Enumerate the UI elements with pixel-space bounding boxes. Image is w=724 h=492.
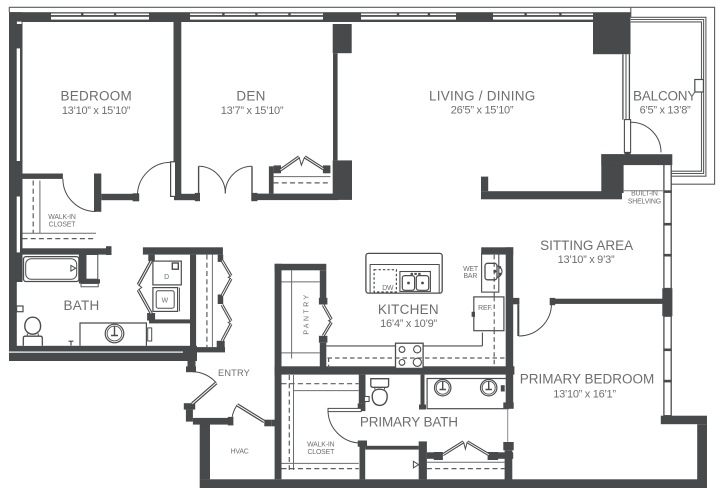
svg-text:DEN: DEN — [236, 88, 265, 103]
svg-text:HVAC: HVAC — [231, 448, 249, 455]
svg-text:W: W — [162, 298, 169, 305]
svg-text:PANTRY: PANTRY — [303, 292, 310, 334]
svg-text:BATH: BATH — [63, 298, 99, 313]
svg-text:ENTRY: ENTRY — [218, 368, 250, 378]
svg-text:WET: WET — [463, 266, 479, 273]
svg-text:BAR: BAR — [463, 273, 477, 280]
svg-text:13’10” x 9’3”: 13’10” x 9’3” — [558, 254, 615, 266]
svg-text:BUILT-IN: BUILT-IN — [631, 191, 658, 198]
svg-text:13’10” x 16’1”: 13’10” x 16’1” — [553, 388, 616, 400]
svg-text:CLOSET: CLOSET — [49, 221, 77, 228]
svg-text:LIVING / DINING: LIVING / DINING — [429, 89, 536, 104]
svg-text:PRIMARY BATH: PRIMARY BATH — [360, 415, 458, 430]
svg-text:PRIMARY BEDROOM: PRIMARY BEDROOM — [520, 371, 655, 386]
svg-text:BEDROOM: BEDROOM — [61, 88, 133, 103]
svg-text:D: D — [164, 274, 169, 281]
svg-text:KITCHEN: KITCHEN — [378, 302, 439, 317]
svg-text:REF.: REF. — [478, 305, 493, 312]
svg-text:13’7” x 15’10”: 13’7” x 15’10” — [221, 105, 284, 117]
svg-text:26’5” x 15’10”: 26’5” x 15’10” — [451, 104, 514, 116]
svg-text:BALCONY: BALCONY — [633, 88, 696, 103]
svg-text:WALK-IN: WALK-IN — [48, 214, 76, 221]
svg-text:SITTING AREA: SITTING AREA — [540, 238, 633, 253]
svg-text:DW: DW — [382, 285, 394, 292]
svg-text:16’4” x 10’9”: 16’4” x 10’9” — [380, 318, 437, 330]
svg-text:SHELVING: SHELVING — [628, 198, 661, 205]
svg-text:13’10” x 15’10”: 13’10” x 15’10” — [62, 105, 131, 117]
svg-text:6’5” x 13’8”: 6’5” x 13’8” — [640, 104, 691, 116]
svg-text:WALK-IN: WALK-IN — [307, 441, 335, 448]
svg-text:CLOSET: CLOSET — [307, 449, 335, 456]
